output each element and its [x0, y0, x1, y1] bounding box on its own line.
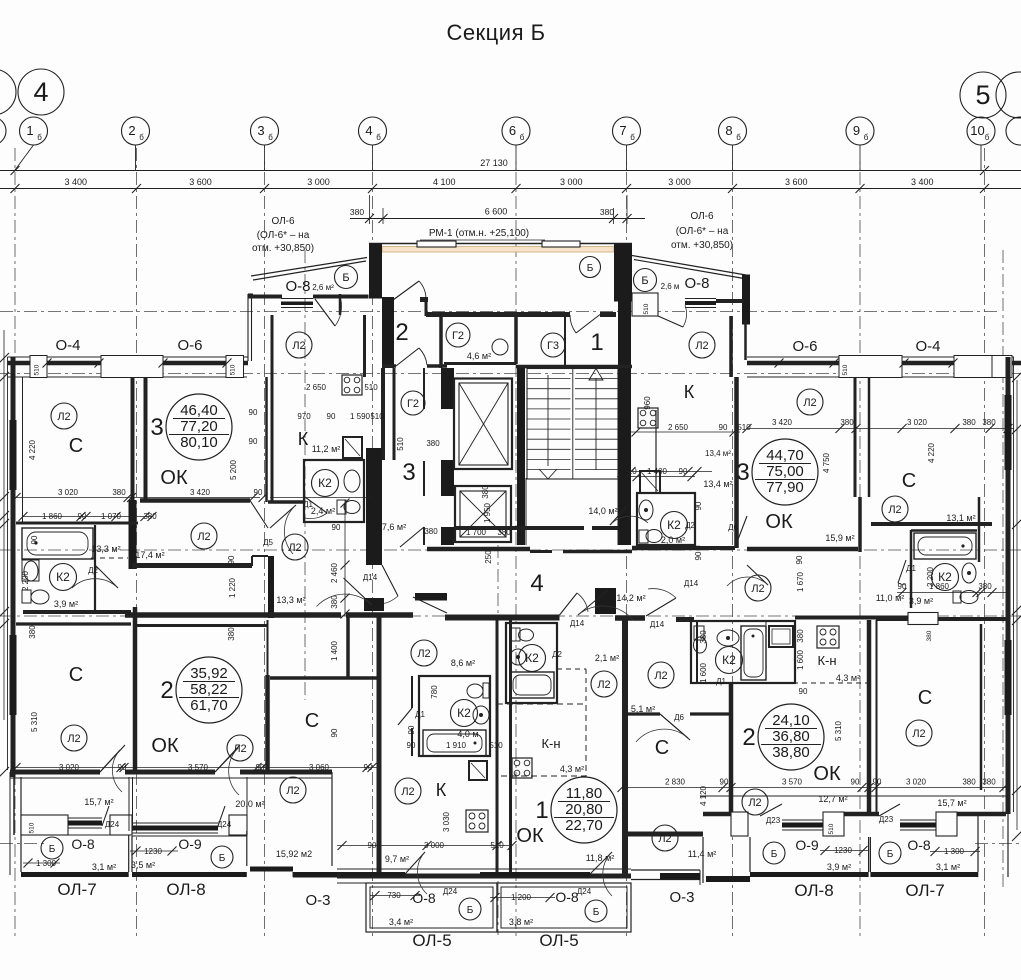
svg-text:К: К [436, 780, 447, 800]
svg-text:С: С [305, 710, 319, 732]
svg-text:Д14: Д14 [570, 619, 585, 628]
svg-text:2,6 м²: 2,6 м² [312, 283, 334, 292]
svg-text:Б: Б [342, 272, 349, 284]
svg-text:К2: К2 [56, 570, 70, 584]
svg-text:Г2: Г2 [452, 330, 464, 342]
svg-text:46,40: 46,40 [180, 402, 218, 419]
svg-text:510: 510 [29, 822, 36, 833]
svg-text:3,5 м²: 3,5 м² [131, 860, 155, 870]
svg-text:Б: Б [771, 849, 778, 860]
svg-text:Д14: Д14 [684, 579, 699, 588]
svg-text:Секция Б: Секция Б [446, 20, 545, 45]
svg-text:380: 380 [112, 488, 126, 497]
svg-text:2 650: 2 650 [668, 423, 689, 432]
svg-text:С: С [655, 737, 669, 759]
svg-text:С: С [69, 664, 83, 686]
svg-text:4,0 м: 4,0 м [457, 729, 478, 739]
svg-text:О-3: О-3 [669, 889, 694, 906]
svg-text:Л2: Л2 [803, 397, 816, 409]
svg-text:К2: К2 [318, 476, 332, 490]
svg-text:О-8: О-8 [684, 275, 709, 292]
svg-text:10: 10 [970, 123, 984, 138]
svg-text:О-9: О-9 [178, 836, 202, 852]
svg-text:15,7 м²: 15,7 м² [84, 797, 113, 807]
svg-text:380: 380 [982, 778, 996, 787]
svg-text:1: 1 [590, 329, 603, 356]
svg-text:36,80: 36,80 [772, 728, 810, 745]
svg-text:2: 2 [128, 123, 135, 138]
svg-text:510: 510 [396, 437, 405, 451]
svg-text:3 000: 3 000 [668, 177, 691, 187]
svg-text:3,4 м²: 3,4 м² [389, 917, 413, 927]
svg-text:К2: К2 [722, 653, 736, 667]
svg-text:90: 90 [873, 778, 882, 787]
svg-text:11,80: 11,80 [566, 785, 602, 802]
svg-text:О-8: О-8 [907, 837, 931, 853]
svg-text:(ОЛ-6* – на: (ОЛ-6* – на [676, 226, 729, 237]
svg-text:3 020: 3 020 [906, 778, 927, 787]
svg-text:Л2: Л2 [288, 542, 301, 554]
svg-text:Л2: Л2 [654, 670, 667, 682]
svg-text:510: 510 [364, 383, 378, 392]
svg-text:380: 380 [600, 207, 614, 217]
svg-text:90: 90 [851, 778, 860, 787]
svg-text:13,1 м²: 13,1 м² [946, 513, 975, 523]
svg-text:380: 380 [796, 629, 805, 643]
svg-text:380: 380 [699, 630, 708, 644]
svg-text:Л2: Л2 [748, 797, 761, 809]
svg-text:11,2 м²: 11,2 м² [312, 444, 341, 454]
svg-text:б: б [736, 133, 741, 142]
svg-text:13,3 м²: 13,3 м² [91, 544, 120, 554]
svg-text:3 400: 3 400 [64, 177, 87, 187]
svg-text:2 830: 2 830 [665, 778, 686, 787]
svg-text:5 310: 5 310 [30, 711, 39, 732]
svg-text:Г3: Г3 [547, 340, 559, 352]
svg-text:20,0 м²: 20,0 м² [235, 799, 264, 809]
svg-text:ОЛ-7: ОЛ-7 [905, 881, 944, 900]
svg-text:510: 510 [828, 823, 835, 834]
svg-text:б: б [985, 133, 990, 142]
svg-text:О-8: О-8 [555, 889, 579, 905]
svg-text:ОЛ-6: ОЛ-6 [690, 211, 714, 222]
svg-text:380: 380 [481, 485, 490, 499]
svg-text:1230: 1230 [144, 847, 162, 856]
svg-text:3: 3 [736, 459, 749, 486]
svg-text:К2: К2 [525, 651, 539, 665]
svg-text:90: 90 [332, 523, 341, 532]
svg-text:14,2 м²: 14,2 м² [616, 593, 645, 603]
svg-text:К: К [684, 382, 695, 402]
svg-text:О-9: О-9 [795, 837, 819, 853]
svg-text:О-6: О-6 [792, 338, 817, 355]
svg-text:5,1 м²: 5,1 м² [631, 704, 655, 714]
svg-text:90: 90 [249, 437, 258, 446]
svg-text:8,6 м²: 8,6 м² [451, 658, 475, 668]
svg-text:27 130: 27 130 [480, 158, 508, 168]
svg-text:Б: Б [593, 907, 600, 918]
svg-text:б: б [268, 133, 273, 142]
svg-text:Д23: Д23 [879, 815, 894, 824]
svg-text:ОК: ОК [151, 735, 179, 757]
svg-text:90: 90 [694, 551, 703, 560]
svg-text:Д5: Д5 [263, 538, 273, 547]
svg-text:6 600: 6 600 [485, 207, 508, 217]
svg-text:90: 90 [227, 555, 236, 564]
svg-text:4,3 м²: 4,3 м² [836, 673, 860, 683]
svg-text:С: С [918, 687, 932, 709]
svg-text:3: 3 [150, 414, 163, 441]
svg-text:90: 90 [719, 423, 728, 432]
svg-text:510: 510 [34, 364, 41, 375]
svg-text:22,70: 22,70 [565, 817, 603, 834]
svg-text:20,80: 20,80 [565, 801, 603, 818]
svg-text:44,70: 44,70 [766, 447, 804, 464]
svg-text:1: 1 [535, 797, 548, 824]
svg-text:Д23: Д23 [766, 816, 781, 825]
svg-text:ОЛ-8: ОЛ-8 [794, 881, 833, 900]
svg-text:Л2: Л2 [292, 340, 305, 352]
svg-text:75,00: 75,00 [766, 463, 804, 480]
svg-text:15,7 м²: 15,7 м² [937, 798, 966, 808]
svg-text:Д1: Д1 [716, 677, 726, 686]
svg-text:1 670: 1 670 [796, 571, 805, 592]
svg-text:Л2: Л2 [912, 728, 925, 740]
svg-text:5: 5 [975, 80, 990, 110]
svg-text:Д24: Д24 [217, 820, 232, 829]
svg-text:б: б [139, 133, 144, 142]
svg-text:Л2: Л2 [57, 411, 70, 423]
svg-text:17,4 м²: 17,4 м² [135, 550, 164, 560]
svg-text:15,9 м²: 15,9 м² [825, 533, 854, 543]
svg-text:380: 380 [497, 528, 511, 537]
svg-text:б: б [376, 133, 381, 142]
svg-text:510: 510 [643, 303, 650, 314]
svg-text:1 700: 1 700 [466, 528, 487, 537]
svg-text:4 100: 4 100 [433, 177, 456, 187]
svg-text:Г2: Г2 [407, 398, 419, 410]
svg-text:38,80: 38,80 [772, 744, 810, 761]
svg-text:Д6: Д6 [728, 523, 738, 532]
svg-text:90: 90 [327, 412, 336, 421]
svg-text:Л2: Л2 [888, 504, 901, 516]
svg-text:3,1 м²: 3,1 м² [936, 862, 960, 872]
svg-text:Д14: Д14 [363, 573, 378, 582]
svg-text:2 650: 2 650 [306, 383, 327, 392]
svg-text:ОК: ОК [516, 825, 544, 847]
svg-text:80,10: 80,10 [180, 434, 218, 451]
svg-text:Д24: Д24 [105, 820, 120, 829]
svg-text:13,4 м²: 13,4 м² [705, 449, 731, 458]
svg-text:3 420: 3 420 [190, 488, 211, 497]
svg-text:380: 380 [424, 527, 438, 536]
svg-text:Л2: Л2 [401, 786, 414, 798]
svg-text:3: 3 [257, 123, 264, 138]
svg-text:Б: Б [467, 905, 474, 916]
svg-text:Д14: Д14 [650, 620, 665, 629]
svg-text:2 460: 2 460 [330, 562, 339, 583]
svg-text:ОЛ-5: ОЛ-5 [539, 931, 578, 950]
svg-text:4,6 м²: 4,6 м² [467, 351, 491, 361]
svg-text:13,3 м²: 13,3 м² [276, 595, 305, 605]
svg-text:Б: Б [49, 844, 56, 855]
svg-text:К-н: К-н [817, 653, 836, 668]
svg-text:Д6: Д6 [674, 713, 684, 722]
svg-text:Л2: Л2 [233, 743, 246, 755]
svg-text:90: 90 [795, 555, 804, 564]
svg-text:14,0 м²: 14,0 м² [588, 506, 617, 516]
svg-text:15,92 м2: 15,92 м2 [276, 849, 312, 859]
svg-text:1 300: 1 300 [36, 859, 57, 868]
svg-text:3,9 м²: 3,9 м² [827, 862, 851, 872]
svg-text:1 950: 1 950 [483, 502, 492, 523]
svg-text:380: 380 [227, 627, 236, 641]
svg-text:1 220: 1 220 [228, 577, 237, 598]
svg-text:2,1 м²: 2,1 м² [595, 653, 619, 663]
svg-text:О-8: О-8 [412, 890, 436, 906]
svg-text:380: 380 [426, 439, 440, 448]
svg-text:510: 510 [617, 417, 631, 426]
svg-text:Д2: Д2 [552, 650, 562, 659]
svg-text:2,6 м: 2,6 м [661, 282, 680, 291]
svg-text:К2: К2 [457, 706, 471, 720]
svg-text:отм. +30,850): отм. +30,850) [671, 240, 733, 251]
svg-text:4 220: 4 220 [28, 439, 37, 460]
svg-text:90: 90 [407, 725, 416, 734]
svg-text:2: 2 [742, 724, 755, 751]
svg-text:К: К [298, 429, 309, 449]
svg-text:2: 2 [395, 319, 408, 346]
svg-text:Л2: Л2 [751, 583, 764, 595]
svg-text:Л2: Л2 [286, 785, 299, 797]
svg-text:б: б [864, 133, 869, 142]
svg-text:Б: Б [587, 263, 594, 274]
svg-text:7: 7 [619, 123, 626, 138]
svg-text:Л2: Л2 [695, 340, 708, 352]
svg-text:3: 3 [402, 459, 415, 486]
svg-text:4 220: 4 220 [927, 442, 936, 463]
svg-text:б: б [37, 133, 42, 142]
svg-text:13,4 м²: 13,4 м² [703, 479, 732, 489]
svg-text:3 030: 3 030 [442, 811, 451, 832]
svg-text:4 750: 4 750 [822, 452, 831, 473]
svg-text:Л2: Л2 [597, 679, 610, 691]
svg-text:3 600: 3 600 [189, 177, 212, 187]
svg-text:3 420: 3 420 [772, 418, 793, 427]
svg-text:Д24: Д24 [443, 887, 458, 896]
svg-text:Б: Б [219, 853, 226, 864]
svg-text:6: 6 [509, 123, 516, 138]
svg-text:380: 380 [350, 207, 364, 217]
svg-text:1: 1 [26, 123, 33, 138]
svg-text:5 200: 5 200 [229, 459, 238, 480]
svg-text:90: 90 [799, 687, 808, 696]
svg-text:ОК: ОК [765, 511, 793, 533]
svg-text:960: 960 [643, 396, 652, 410]
svg-text:б: б [630, 133, 635, 142]
svg-text:3,8 м²: 3,8 м² [509, 917, 533, 927]
svg-text:Л2: Л2 [67, 733, 80, 745]
svg-text:380: 380 [926, 630, 933, 641]
svg-text:О-8: О-8 [285, 278, 310, 295]
svg-text:К-н: К-н [541, 736, 560, 751]
svg-text:1 600: 1 600 [699, 662, 708, 683]
svg-text:24,10: 24,10 [772, 712, 810, 729]
svg-text:1 590: 1 590 [350, 412, 371, 421]
svg-text:510: 510 [489, 741, 503, 750]
svg-text:250: 250 [484, 550, 493, 564]
svg-text:О-6: О-6 [177, 337, 202, 354]
svg-text:1 400: 1 400 [330, 640, 339, 661]
svg-text:510: 510 [370, 412, 384, 421]
svg-text:90: 90 [720, 778, 729, 787]
svg-text:90: 90 [694, 501, 703, 510]
svg-text:3,9 м²: 3,9 м² [54, 599, 78, 609]
svg-text:90: 90 [249, 408, 258, 417]
svg-text:Л2: Л2 [658, 833, 671, 845]
svg-text:4: 4 [365, 123, 372, 138]
svg-text:7,6 м²: 7,6 м² [382, 522, 406, 532]
svg-text:3 400: 3 400 [911, 177, 934, 187]
svg-text:ОЛ-6: ОЛ-6 [271, 216, 295, 227]
svg-text:Л2: Л2 [417, 648, 430, 660]
svg-text:Л2: Л2 [197, 531, 210, 543]
svg-text:3 020: 3 020 [58, 488, 79, 497]
svg-text:90: 90 [330, 728, 339, 737]
svg-text:11,4 м²: 11,4 м² [688, 849, 717, 859]
svg-text:780: 780 [430, 685, 439, 699]
svg-text:2,0 м²: 2,0 м² [661, 535, 685, 545]
svg-text:С: С [902, 470, 916, 492]
svg-text:1 910: 1 910 [446, 741, 467, 750]
svg-text:ОЛ-7: ОЛ-7 [57, 880, 96, 899]
svg-text:Д1: Д1 [303, 500, 313, 509]
svg-text:О-8: О-8 [71, 836, 95, 852]
svg-text:8: 8 [725, 123, 732, 138]
svg-text:2,4 м²: 2,4 м² [311, 506, 335, 516]
svg-text:2: 2 [160, 677, 173, 704]
svg-text:К2: К2 [667, 518, 681, 532]
svg-text:О-4: О-4 [55, 337, 80, 354]
svg-text:2 200: 2 200 [926, 566, 935, 587]
svg-text:77,20: 77,20 [180, 418, 218, 435]
svg-text:510: 510 [842, 364, 849, 375]
svg-text:380: 380 [982, 418, 996, 427]
svg-text:9: 9 [853, 123, 860, 138]
svg-text:О-4: О-4 [915, 338, 940, 355]
svg-text:3 570: 3 570 [782, 778, 803, 787]
svg-text:380: 380 [962, 778, 976, 787]
svg-text:С: С [69, 435, 83, 457]
svg-text:Б: Б [641, 275, 648, 287]
svg-text:35,92: 35,92 [190, 665, 228, 682]
svg-text:58,22: 58,22 [190, 681, 228, 698]
svg-text:380: 380 [28, 625, 37, 639]
svg-text:2 200: 2 200 [21, 570, 30, 591]
svg-text:4: 4 [33, 77, 48, 107]
svg-text:ОК: ОК [160, 467, 188, 489]
svg-text:1 600: 1 600 [796, 649, 805, 670]
svg-text:РМ-1 (отм.н. +25,100): РМ-1 (отм.н. +25,100) [429, 228, 529, 239]
svg-text:Б: Б [887, 849, 894, 860]
svg-text:ОК: ОК [813, 763, 841, 785]
svg-text:970: 970 [297, 412, 311, 421]
svg-text:4,3 м²: 4,3 м² [560, 764, 584, 774]
svg-text:ОЛ-8: ОЛ-8 [166, 880, 205, 899]
svg-text:90: 90 [30, 535, 39, 544]
svg-text:Д1: Д1 [906, 564, 916, 573]
svg-text:3 600: 3 600 [785, 177, 808, 187]
svg-text:3 000: 3 000 [307, 177, 330, 187]
svg-text:Д24: Д24 [577, 887, 592, 896]
svg-text:77,90: 77,90 [766, 479, 804, 496]
svg-text:3,9 м²: 3,9 м² [909, 596, 933, 606]
svg-text:Д1: Д1 [415, 710, 425, 719]
svg-text:3 020: 3 020 [907, 418, 928, 427]
svg-text:Д2: Д2 [685, 521, 695, 530]
svg-text:3,1 м²: 3,1 м² [92, 862, 116, 872]
svg-text:9,7 м²: 9,7 м² [385, 854, 409, 864]
svg-text:О-3: О-3 [305, 892, 330, 909]
svg-text:ОЛ-5: ОЛ-5 [412, 931, 451, 950]
svg-text:61,70: 61,70 [190, 697, 228, 714]
svg-text:510: 510 [230, 364, 237, 375]
svg-text:5 310: 5 310 [834, 720, 843, 741]
svg-text:б: б [520, 133, 525, 142]
svg-text:380: 380 [962, 418, 976, 427]
svg-text:90: 90 [407, 741, 416, 750]
svg-text:4: 4 [530, 570, 543, 597]
svg-text:3 000: 3 000 [560, 177, 583, 187]
